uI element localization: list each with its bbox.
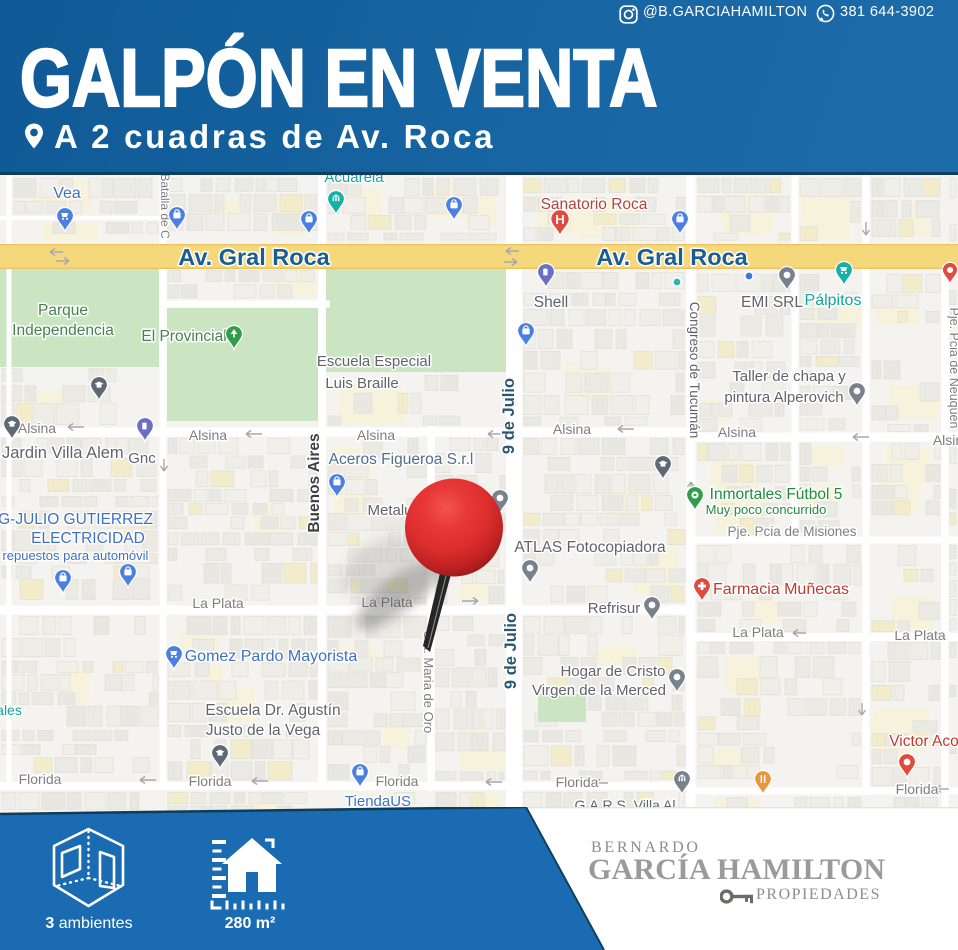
svg-text:Farmacia Muñecas: Farmacia Muñecas <box>713 581 849 598</box>
svg-text:Virgen de la Merced: Virgen de la Merced <box>532 682 666 699</box>
svg-text:Refrisur: Refrisur <box>588 600 641 617</box>
svg-text:Escuela Especial: Escuela Especial <box>317 353 431 370</box>
svg-text:Alsina: Alsina <box>18 420 56 436</box>
svg-text:EMI SRL: EMI SRL <box>741 294 803 311</box>
svg-text:pintura Alperovich: pintura Alperovich <box>724 389 843 406</box>
svg-text:Av. Gral Roca: Av. Gral Roca <box>178 244 330 270</box>
svg-text:Av. Gral Roca: Av. Gral Roca <box>596 244 748 270</box>
svg-text:Alsina: Alsina <box>718 424 756 440</box>
svg-text:El Provincial: El Provincial <box>141 328 226 345</box>
svg-text:La Plata: La Plata <box>192 595 244 611</box>
svg-text:e repuestos para automóvil: e repuestos para automóvil <box>0 548 149 563</box>
svg-text:ales: ales <box>0 702 22 718</box>
svg-text:Acuarela: Acuarela <box>324 175 384 186</box>
svg-text:Jardin Villa Alem: Jardin Villa Alem <box>2 444 124 462</box>
svg-text:Batalla de C: Batalla de C <box>158 175 172 239</box>
svg-text:Muy poco concurrido: Muy poco concurrido <box>706 502 827 517</box>
svg-text:Pálpitos: Pálpitos <box>805 292 862 309</box>
svg-text:Florida: Florida <box>189 773 232 789</box>
svg-text:Justo de la Vega: Justo de la Vega <box>206 722 321 739</box>
svg-text:ELECTRICIDAD: ELECTRICIDAD <box>31 530 145 547</box>
svg-text:Aceros Figueroa S.r.l: Aceros Figueroa S.r.l <box>329 451 474 468</box>
svg-text:Parque: Parque <box>38 302 88 319</box>
svg-text:Alsina: Alsina <box>189 427 227 443</box>
svg-text:Hogar de Cristo: Hogar de Cristo <box>560 663 665 680</box>
svg-text:Pje. Pcia de Neuquen: Pje. Pcia de Neuquen <box>947 308 958 429</box>
svg-text:Gnc: Gnc <box>128 450 156 467</box>
svg-text:UG-JULIO GUTIERREZ: UG-JULIO GUTIERREZ <box>0 511 153 528</box>
svg-text:La Plata: La Plata <box>894 627 946 643</box>
svg-text:Inmortales Fútbol 5: Inmortales Fútbol 5 <box>710 486 843 503</box>
svg-text:Congreso de Tucumán: Congreso de Tucumán <box>687 302 702 439</box>
svg-text:Victor Aco: Victor Aco <box>889 733 958 750</box>
svg-text:Pje. Pcia de Misiones: Pje. Pcia de Misiones <box>727 524 856 539</box>
svg-text:Florida: Florida <box>556 774 599 790</box>
svg-text:Taller de chapa y: Taller de chapa y <box>732 368 846 385</box>
svg-text:H: H <box>555 212 565 227</box>
svg-text:Florida: Florida <box>376 773 419 789</box>
svg-text:Independencia: Independencia <box>12 322 114 339</box>
svg-text:Metalu: Metalu <box>367 502 412 519</box>
svg-text:Buenos Aires: Buenos Aires <box>306 433 323 532</box>
svg-text:Alsina: Alsina <box>553 421 591 437</box>
svg-text:9 de Julio: 9 de Julio <box>502 613 520 689</box>
svg-text:9 de Julio: 9 de Julio <box>500 378 518 454</box>
svg-text:Luis Braille: Luis Braille <box>325 375 398 392</box>
svg-text:Vea: Vea <box>53 185 81 202</box>
svg-text:Alsin: Alsin <box>933 432 958 448</box>
svg-text:Alsina: Alsina <box>357 427 395 443</box>
svg-text:La Plata: La Plata <box>732 624 784 640</box>
svg-text:Florida: Florida <box>19 771 62 787</box>
svg-text:Escuela Dr. Agustín: Escuela Dr. Agustín <box>205 702 340 719</box>
svg-text:ATLAS Fotocopiadora: ATLAS Fotocopiadora <box>514 539 666 556</box>
svg-text:Gomez Pardo Mayorista: Gomez Pardo Mayorista <box>185 648 358 665</box>
svg-text:Shell: Shell <box>534 294 568 311</box>
svg-text:Florida: Florida <box>896 781 939 797</box>
